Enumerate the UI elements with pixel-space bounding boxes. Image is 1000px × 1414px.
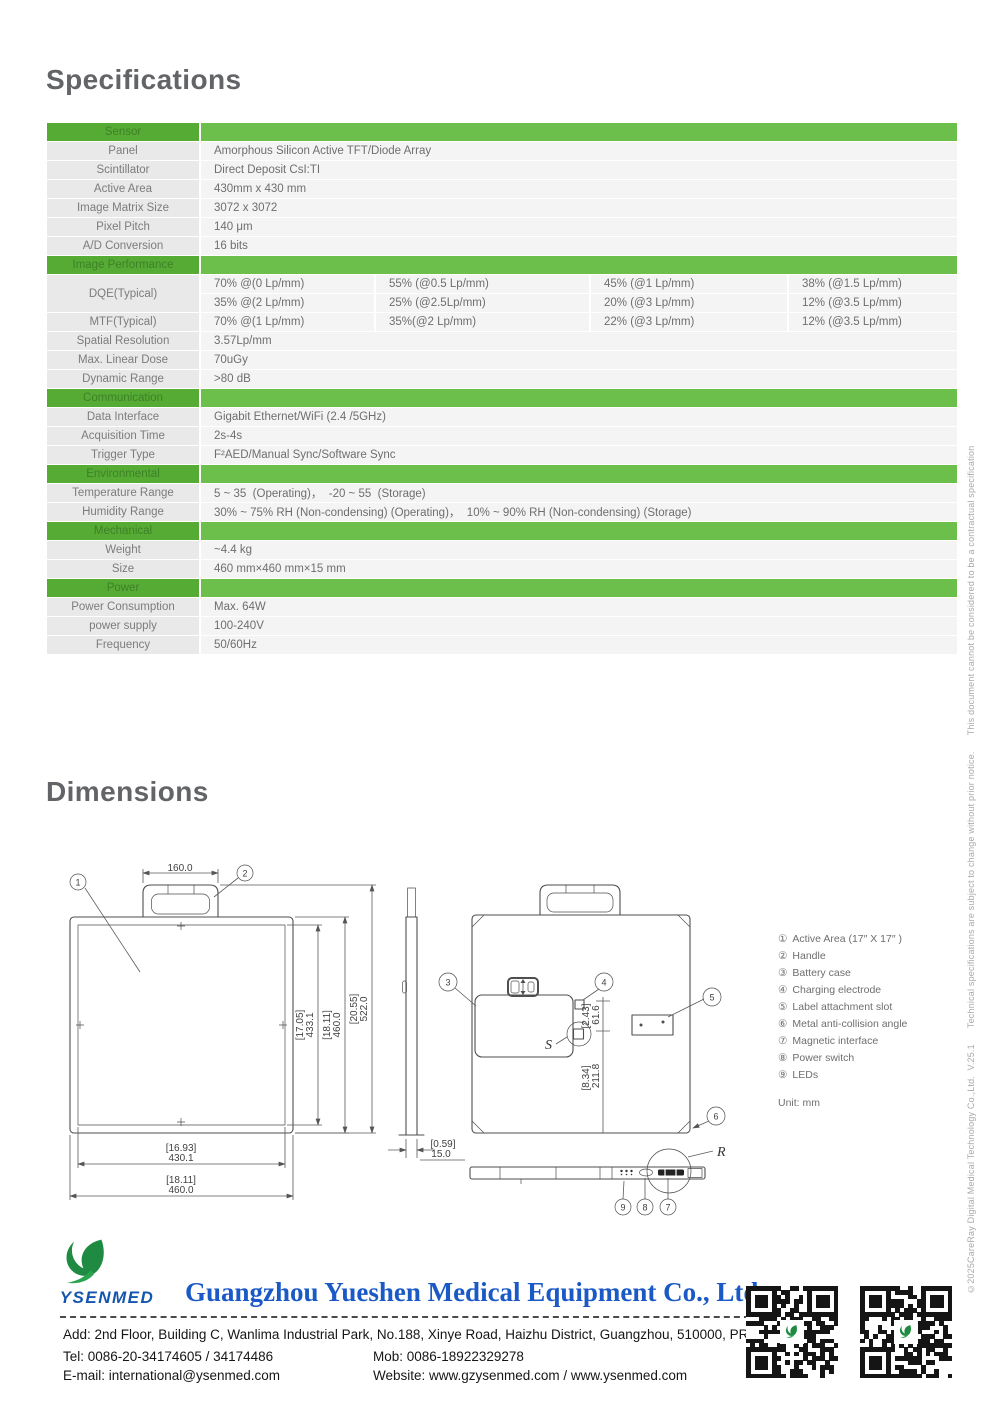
dqe-value: 35% @(2 Lp/mm) bbox=[201, 294, 374, 312]
dim-handle-width: 160.0 bbox=[167, 863, 192, 874]
section-header-row: Mechanical bbox=[47, 522, 957, 540]
section-header-fill bbox=[201, 579, 957, 597]
callout-6: 6 bbox=[693, 1107, 725, 1128]
datasheet-page: Specifications Sensor PanelAmorphous Sil… bbox=[0, 0, 1000, 1414]
spec-label: Spatial Resolution bbox=[47, 332, 199, 350]
dqe-value: 25% (@2.5Lp/mm) bbox=[376, 294, 589, 312]
legend-text: LEDs bbox=[792, 1069, 818, 1081]
spec-label: Image Matrix Size bbox=[47, 199, 199, 217]
callout-4: 4 bbox=[583, 973, 613, 1000]
mtf-value: 35%(@2 Lp/mm) bbox=[376, 313, 589, 331]
s-label: S bbox=[545, 1038, 552, 1053]
legend-num: ⑥ bbox=[778, 1018, 787, 1030]
spec-label: Humidity Range bbox=[47, 503, 199, 521]
table-row: Temperature Range5 ~ 35 (Operating)， -20… bbox=[47, 484, 957, 502]
callout-1: 1 bbox=[70, 874, 140, 972]
callout-2: 2 bbox=[214, 865, 253, 897]
table-row: power supply100-240V bbox=[47, 617, 957, 635]
drawing-legend: ①Active Area (17″ X 17″ ) ②Handle ③Batte… bbox=[778, 930, 907, 1109]
spec-value: 30% ~ 75% RH (Non-condensing) (Operating… bbox=[201, 503, 957, 521]
spec-label: Acquisition Time bbox=[47, 427, 199, 445]
spec-value: 460 mm×460 mm×15 mm bbox=[201, 560, 957, 578]
table-row: Max. Linear Dose70uGy bbox=[47, 351, 957, 369]
spec-value: 50/60Hz bbox=[201, 636, 957, 654]
section-header-fill bbox=[201, 389, 957, 407]
power-switch bbox=[640, 1169, 653, 1176]
dimensions-drawing: 160.0 1 2 [17.05] 433.1 [18.11] 460.0 [2… bbox=[40, 850, 780, 1230]
legend-item: ⑧Power switch bbox=[778, 1049, 907, 1066]
legend-num: ① bbox=[778, 933, 787, 945]
legend-num: ② bbox=[778, 950, 787, 962]
qr-code-left bbox=[746, 1286, 838, 1378]
unit-note: Unit: mm bbox=[778, 1097, 907, 1109]
spec-label: MTF(Typical) bbox=[47, 313, 199, 331]
section-header-fill bbox=[201, 123, 957, 141]
ysenmed-logo-icon bbox=[60, 1236, 114, 1290]
section-title: Image Performance bbox=[47, 256, 199, 274]
spec-label: Max. Linear Dose bbox=[47, 351, 199, 369]
copyright-side-note: ©2025CareRay Digital Medical Technology … bbox=[966, 418, 976, 1294]
spec-value: 5 ~ 35 (Operating)， -20 ~ 55 (Storage) bbox=[201, 484, 957, 502]
legend-num: ⑤ bbox=[778, 1001, 787, 1013]
ysenmed-logo-text: YSENMED bbox=[48, 1288, 166, 1308]
table-row: PanelAmorphous Silicon Active TFT/Diode … bbox=[47, 142, 957, 160]
callout-2-number: 2 bbox=[242, 868, 247, 878]
mtf-value: 12% (@3.5 Lp/mm) bbox=[789, 313, 957, 331]
spec-value: 2s-4s bbox=[201, 427, 957, 445]
legend-text: Magnetic interface bbox=[792, 1035, 878, 1047]
footer-divider bbox=[60, 1316, 760, 1318]
dim-panel-height-mm: 460.0 bbox=[332, 1012, 343, 1037]
legend-num: ⑨ bbox=[778, 1069, 787, 1081]
footer-address: Add: 2nd Floor, Building C, Wanlima Indu… bbox=[63, 1327, 758, 1342]
table-row: Active Area430mm x 430 mm bbox=[47, 180, 957, 198]
qr-center-logo bbox=[894, 1320, 918, 1344]
footer-website: Website: www.gzysenmed.com / www.ysenmed… bbox=[373, 1368, 687, 1383]
mtf-value: 70% @(1 Lp/mm) bbox=[201, 313, 374, 331]
spec-label: Power Consumption bbox=[47, 598, 199, 616]
dim-panel-width-mm: 460.0 bbox=[168, 1185, 193, 1196]
legend-text: Metal anti-collision angle bbox=[792, 1018, 907, 1030]
qr-code-right bbox=[860, 1286, 952, 1378]
page-title-dimensions: Dimensions bbox=[46, 776, 209, 808]
dqe-value: 20% (@3 Lp/mm) bbox=[591, 294, 787, 312]
spec-label: Weight bbox=[47, 541, 199, 559]
table-row-mtf: MTF(Typical) 70% @(1 Lp/mm) 35%(@2 Lp/mm… bbox=[47, 313, 957, 331]
dim-bottom-offset-mm: 211.8 bbox=[591, 1063, 602, 1088]
legend-item: ③Battery case bbox=[778, 964, 907, 981]
dim-total-height-mm: 522.0 bbox=[359, 996, 370, 1021]
spec-label: Scintillator bbox=[47, 161, 199, 179]
dqe-value: 70% @(0 Lp/mm) bbox=[201, 275, 374, 293]
section-header-fill bbox=[201, 256, 957, 274]
table-row: Pixel Pitch140 μm bbox=[47, 218, 957, 236]
section-header-row: Power bbox=[47, 579, 957, 597]
footer-email: E-mail: international@ysenmed.com bbox=[63, 1368, 280, 1383]
legend-num: ③ bbox=[778, 967, 787, 979]
dim-electrode-offset-mm: 61.6 bbox=[591, 1005, 602, 1025]
legend-text: Battery case bbox=[792, 967, 850, 979]
legend-item: ⑤Label attachment slot bbox=[778, 998, 907, 1015]
spec-value: Max. 64W bbox=[201, 598, 957, 616]
spec-value: ~4.4 kg bbox=[201, 541, 957, 559]
dqe-value: 38% (@1.5 Lp/mm) bbox=[789, 275, 957, 293]
spec-value: 70uGy bbox=[201, 351, 957, 369]
spec-value: 3072 x 3072 bbox=[201, 199, 957, 217]
spec-label: Panel bbox=[47, 142, 199, 160]
spec-label: Frequency bbox=[47, 636, 199, 654]
section-header-row: Image Performance bbox=[47, 256, 957, 274]
spec-label: Data Interface bbox=[47, 408, 199, 426]
callout-5: 5 bbox=[668, 988, 721, 1017]
spec-label: Temperature Range bbox=[47, 484, 199, 502]
footer-tel: Tel: 0086-20-34174605 / 34174486 bbox=[63, 1349, 273, 1364]
led-indicators bbox=[620, 1170, 632, 1175]
table-row: Power ConsumptionMax. 64W bbox=[47, 598, 957, 616]
spec-label: Dynamic Range bbox=[47, 370, 199, 388]
legend-item: ⑨LEDs bbox=[778, 1066, 907, 1083]
callout-4-number: 4 bbox=[601, 977, 606, 987]
side-view: [0.59] 15.0 bbox=[388, 888, 465, 1160]
spec-value: Direct Deposit CsI:TI bbox=[201, 161, 957, 179]
section-title: Power bbox=[47, 579, 199, 597]
legend-item: ②Handle bbox=[778, 947, 907, 964]
table-row: Weight~4.4 kg bbox=[47, 541, 957, 559]
table-row: Acquisition Time2s-4s bbox=[47, 427, 957, 445]
section-title: Communication bbox=[47, 389, 199, 407]
label-slot bbox=[632, 1015, 673, 1035]
spec-label: A/D Conversion bbox=[47, 237, 199, 255]
legend-item: ⑥Metal anti-collision angle bbox=[778, 1015, 907, 1032]
spec-label: DQE(Typical) bbox=[47, 275, 199, 312]
mtf-value: 22% (@3 Lp/mm) bbox=[591, 313, 787, 331]
table-row: Data InterfaceGigabit Ethernet/WiFi (2.4… bbox=[47, 408, 957, 426]
spec-label: Pixel Pitch bbox=[47, 218, 199, 236]
callout-3-number: 3 bbox=[445, 977, 450, 987]
legend-item: ①Active Area (17″ X 17″ ) bbox=[778, 930, 907, 947]
callout-7-number: 7 bbox=[665, 1202, 670, 1212]
spec-value: 430mm x 430 mm bbox=[201, 180, 957, 198]
dqe-value: 55% (@0.5 Lp/mm) bbox=[376, 275, 589, 293]
table-row: Humidity Range30% ~ 75% RH (Non-condensi… bbox=[47, 503, 957, 521]
spec-value: >80 dB bbox=[201, 370, 957, 388]
legend-text: Power switch bbox=[792, 1052, 854, 1064]
table-row: Dynamic Range>80 dB bbox=[47, 370, 957, 388]
callout-8-number: 8 bbox=[642, 1202, 647, 1212]
section-title: Sensor bbox=[47, 123, 199, 141]
battery-connector bbox=[508, 978, 538, 996]
section-header-row: Communication bbox=[47, 389, 957, 407]
section-header-row: Sensor bbox=[47, 123, 957, 141]
callout-1-number: 1 bbox=[75, 877, 80, 887]
legend-text: Label attachment slot bbox=[792, 1001, 892, 1013]
table-row: Frequency50/60Hz bbox=[47, 636, 957, 654]
front-view: 160.0 1 2 [17.05] 433.1 [18.11] 460.0 [2… bbox=[70, 863, 376, 1200]
spec-value: 16 bits bbox=[201, 237, 957, 255]
table-row: Trigger TypeF²AED/Manual Sync/Software S… bbox=[47, 446, 957, 464]
spec-label: Active Area bbox=[47, 180, 199, 198]
section-header-fill bbox=[201, 522, 957, 540]
spec-label: Size bbox=[47, 560, 199, 578]
bottom-edge-view: R 9 8 7 bbox=[470, 1145, 726, 1215]
qr-center-logo bbox=[780, 1320, 804, 1344]
dqe-value: 12% (@3.5 Lp/mm) bbox=[789, 294, 957, 312]
spec-value: 140 μm bbox=[201, 218, 957, 236]
spec-value: F²AED/Manual Sync/Software Sync bbox=[201, 446, 957, 464]
table-row-dqe: DQE(Typical) 70% @(0 Lp/mm) 55% (@0.5 Lp… bbox=[47, 275, 957, 312]
section-header-row: Environmental bbox=[47, 465, 957, 483]
legend-num: ④ bbox=[778, 984, 787, 996]
callout-9-number: 9 bbox=[620, 1202, 625, 1212]
battery-case-outline bbox=[475, 995, 573, 1057]
callout-3: 3 bbox=[439, 973, 476, 1006]
dim-thickness-mm: 15.0 bbox=[431, 1149, 451, 1160]
table-row: Size460 mm×460 mm×15 mm bbox=[47, 560, 957, 578]
footer-mob: Mob: 0086-18922329278 bbox=[373, 1349, 524, 1364]
legend-num: ⑧ bbox=[778, 1052, 787, 1064]
table-row: Image Matrix Size3072 x 3072 bbox=[47, 199, 957, 217]
spec-label: power supply bbox=[47, 617, 199, 635]
callout-5-number: 5 bbox=[709, 992, 714, 1002]
spec-label: Trigger Type bbox=[47, 446, 199, 464]
legend-item: ⑦Magnetic interface bbox=[778, 1032, 907, 1049]
dqe-value: 45% (@1 Lp/mm) bbox=[591, 275, 787, 293]
back-view: 3 4 S [2.43] 61.6 [8.34] 211.8 bbox=[439, 885, 725, 1133]
spec-value: 3.57Lp/mm bbox=[201, 332, 957, 350]
section-title: Environmental bbox=[47, 465, 199, 483]
table-row: A/D Conversion16 bits bbox=[47, 237, 957, 255]
callout-7: 7 bbox=[660, 1178, 676, 1215]
r-label: R bbox=[716, 1145, 726, 1160]
legend-num: ⑦ bbox=[778, 1035, 787, 1047]
table-row: Spatial Resolution3.57Lp/mm bbox=[47, 332, 957, 350]
magnetic-interface bbox=[658, 1170, 684, 1176]
spec-value: Gigabit Ethernet/WiFi (2.4 /5GHz) bbox=[201, 408, 957, 426]
spec-table: Sensor PanelAmorphous Silicon Active TFT… bbox=[47, 123, 957, 655]
page-title-specifications: Specifications bbox=[46, 64, 241, 96]
spec-value: Amorphous Silicon Active TFT/Diode Array bbox=[201, 142, 957, 160]
section-header-fill bbox=[201, 465, 957, 483]
company-name: Guangzhou Yueshen Medical Equipment Co.,… bbox=[185, 1277, 765, 1308]
dim-active-width-mm: 430.1 bbox=[168, 1153, 193, 1164]
table-row: ScintillatorDirect Deposit CsI:TI bbox=[47, 161, 957, 179]
spec-value: 100-240V bbox=[201, 617, 957, 635]
section-title: Mechanical bbox=[47, 522, 199, 540]
legend-item: ④Charging electrode bbox=[778, 981, 907, 998]
legend-text: Active Area (17″ X 17″ ) bbox=[792, 933, 902, 945]
callout-9: 9 bbox=[615, 1181, 631, 1215]
callout-6-number: 6 bbox=[713, 1111, 718, 1121]
legend-text: Handle bbox=[792, 950, 825, 962]
legend-text: Charging electrode bbox=[792, 984, 881, 996]
dim-active-height-mm: 433.1 bbox=[305, 1012, 316, 1037]
